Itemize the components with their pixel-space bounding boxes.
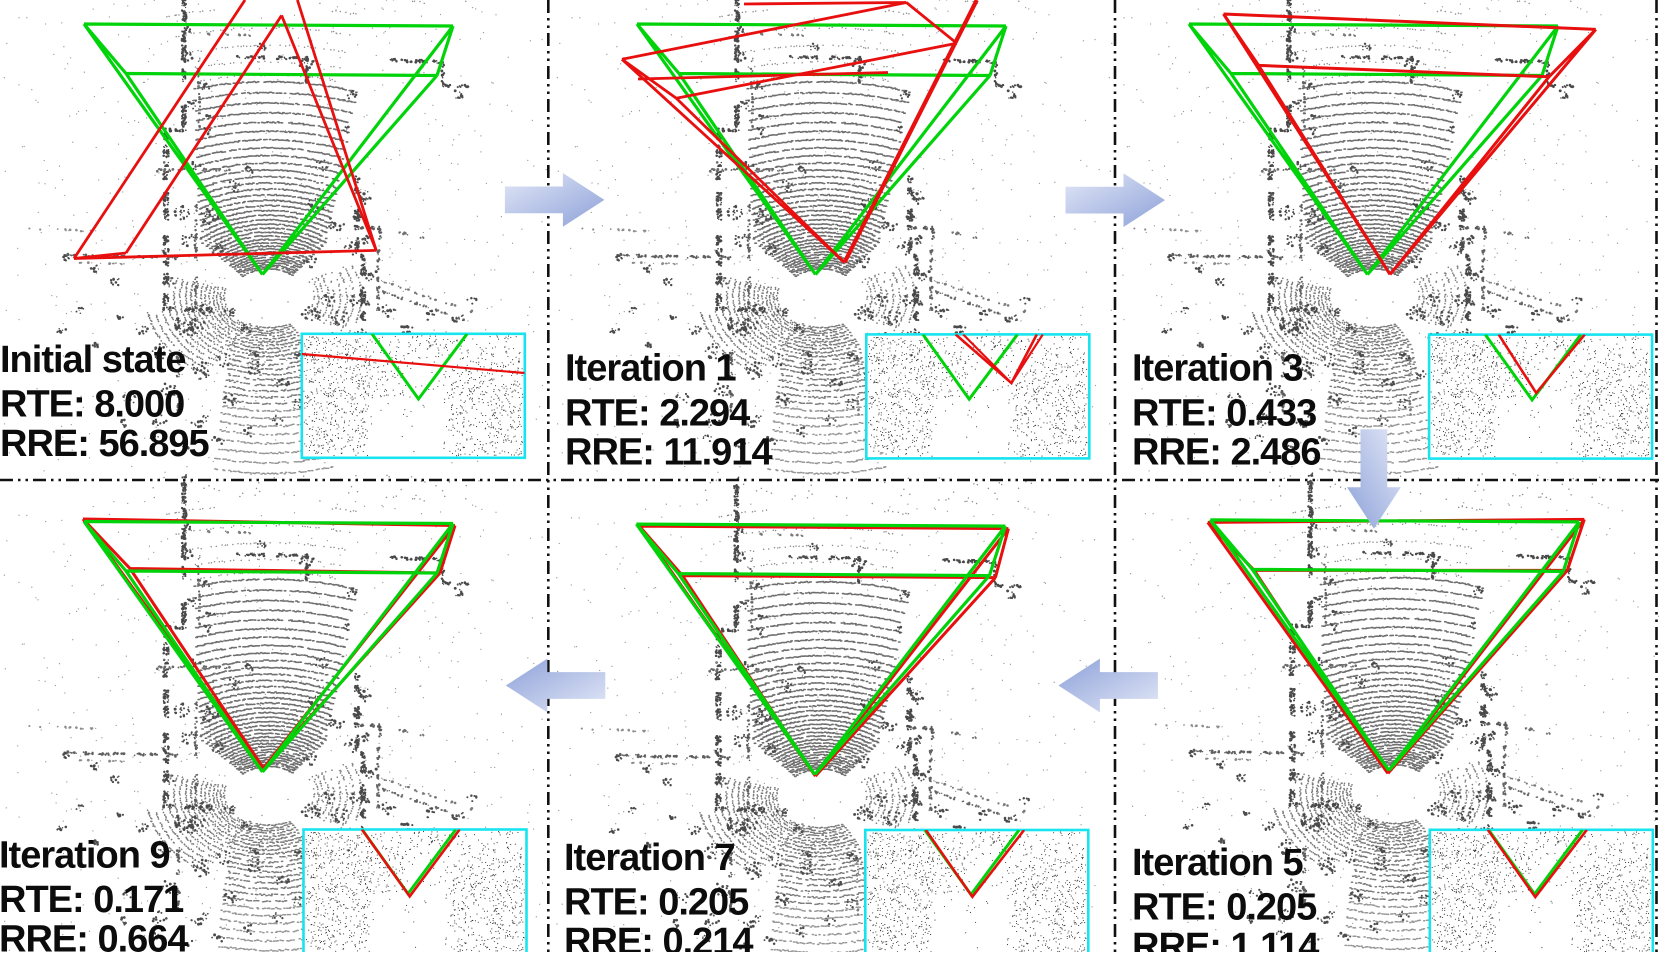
svg-text:RTE: 0.205: RTE: 0.205	[1132, 887, 1317, 929]
svg-text:RTE: 2.294: RTE: 2.294	[565, 392, 750, 434]
svg-text:Iteration 9: Iteration 9	[0, 834, 170, 876]
svg-text:RTE: 0.171: RTE: 0.171	[0, 879, 184, 921]
svg-text:RTE: 8.000: RTE: 8.000	[0, 384, 184, 426]
svg-text:RTE: 0.433: RTE: 0.433	[1132, 392, 1316, 434]
svg-text:Initial state: Initial state	[0, 339, 186, 381]
svg-text:Iteration 3: Iteration 3	[1132, 348, 1303, 390]
svg-text:RRE: 0.664: RRE: 0.664	[0, 918, 188, 952]
svg-text:Iteration 7: Iteration 7	[564, 837, 735, 879]
svg-text:RTE: 0.205: RTE: 0.205	[564, 882, 749, 924]
svg-text:Iteration 5: Iteration 5	[1132, 842, 1303, 884]
svg-text:RRE: 56.895: RRE: 56.895	[0, 423, 210, 465]
svg-text:RRE: 1.114: RRE: 1.114	[1132, 926, 1319, 952]
svg-text:RRE: 2.486: RRE: 2.486	[1132, 432, 1321, 474]
svg-text:Iteration 1: Iteration 1	[565, 348, 736, 390]
svg-text:RRE: 11.914: RRE: 11.914	[565, 432, 772, 474]
svg-text:RRE: 0.214: RRE: 0.214	[564, 921, 753, 952]
